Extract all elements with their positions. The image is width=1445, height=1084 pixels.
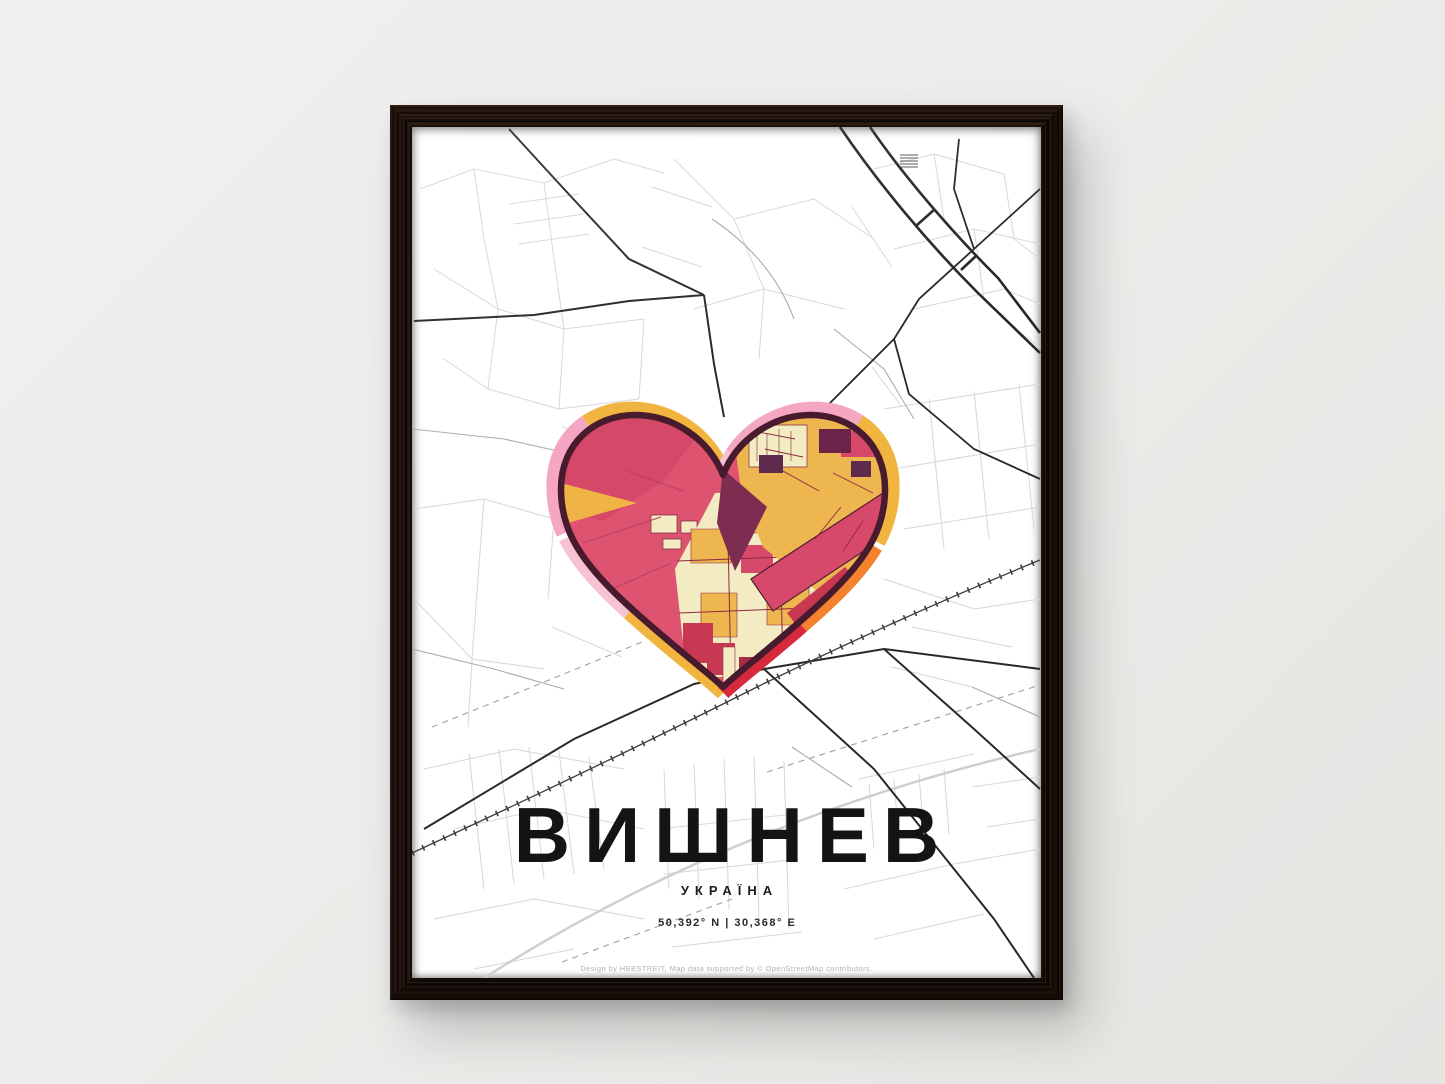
building-hatch [900, 155, 918, 167]
frame-bar-top [390, 105, 1063, 127]
wall-background: ВИШНЕВ УКРАЇНА 50,392° N | 30,368° E Des… [0, 0, 1445, 1084]
frame-bar-bottom [390, 978, 1063, 1000]
map-poster: ВИШНЕВ УКРАЇНА 50,392° N | 30,368° E Des… [412, 127, 1041, 978]
frame-bar-right [1041, 105, 1063, 1000]
heart-map-graphic [554, 409, 893, 713]
poster-frame: ВИШНЕВ УКРАЇНА 50,392° N | 30,368° E Des… [390, 105, 1063, 1000]
street-map-graphic [412, 127, 1041, 978]
frame-bar-left [390, 105, 412, 1000]
